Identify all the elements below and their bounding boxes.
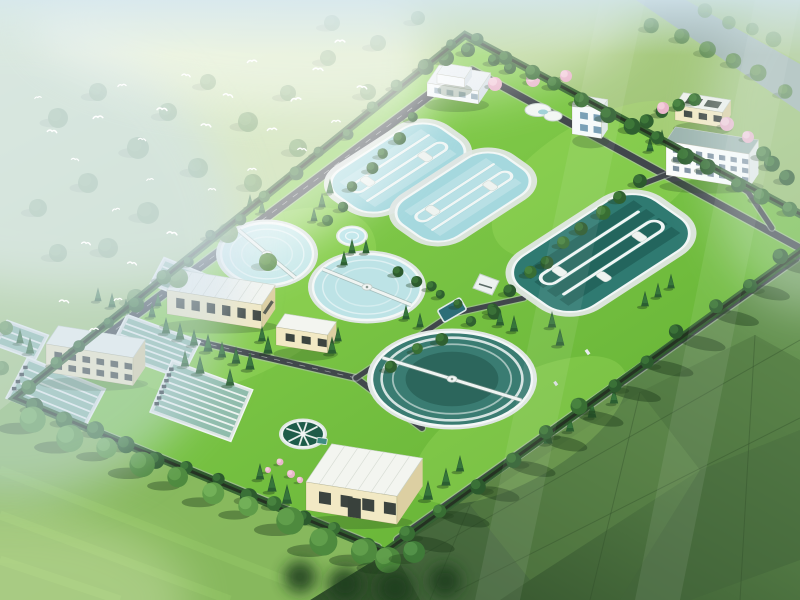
window (253, 310, 261, 321)
tree-highlight (267, 497, 276, 506)
tree-highlight (634, 175, 643, 184)
tree-highlight (624, 119, 634, 129)
tree-highlight (412, 276, 419, 283)
aerial-render-stage: Aerial rendering of a wastewater treatme… (0, 0, 800, 600)
flowering-tree-highlight (287, 470, 292, 475)
window (384, 502, 396, 516)
flowering-tree-highlight (297, 477, 301, 481)
window (302, 336, 311, 345)
tree-highlight (669, 325, 678, 334)
small-pond (538, 110, 548, 115)
window (318, 338, 327, 347)
tree-highlight (168, 467, 181, 480)
tank-outlet-box (317, 437, 328, 444)
tree-highlight (376, 548, 392, 564)
tree-highlight (678, 149, 688, 159)
tree-highlight (471, 480, 481, 490)
clarifier-large (367, 329, 537, 430)
flowering-tree-highlight (277, 459, 281, 463)
window (673, 166, 679, 172)
tree-highlight (436, 333, 444, 341)
tree-highlight (641, 356, 649, 364)
tree-highlight (427, 281, 433, 287)
sky-haze-strip (0, 0, 800, 55)
window (362, 498, 374, 512)
tree-highlight (277, 508, 294, 525)
tree-highlight (488, 307, 496, 315)
flowering-tree-highlight (658, 102, 665, 109)
tree-highlight (689, 94, 697, 102)
tree-highlight (651, 132, 659, 140)
center-pivot (451, 378, 454, 381)
window (237, 307, 245, 318)
foreground-tree (284, 561, 316, 593)
tree-highlight (673, 99, 681, 107)
tree-highlight (525, 266, 533, 274)
tree-highlight (311, 529, 328, 546)
tree-highlight (352, 539, 368, 555)
tree-highlight (436, 290, 442, 296)
tree-highlight (640, 115, 649, 124)
tree-highlight (393, 267, 400, 274)
tree-highlight (203, 483, 217, 497)
tank-hub (301, 432, 306, 437)
tree-highlight (609, 380, 617, 388)
tree-highlight (213, 473, 221, 481)
door (348, 497, 361, 519)
tree-highlight (504, 285, 512, 293)
tree-highlight (239, 497, 251, 509)
tree-highlight (400, 526, 410, 536)
tree-highlight (466, 316, 472, 322)
treatment-plant-aerial-render: Aerial rendering of a wastewater treatme… (0, 0, 800, 600)
tree-highlight (433, 505, 441, 513)
tree-highlight (454, 300, 460, 306)
window (684, 110, 692, 118)
foreground-tree (429, 565, 461, 597)
foreground-tree (328, 567, 362, 600)
tree-highlight (571, 398, 581, 408)
tree-highlight (614, 191, 622, 199)
window (684, 167, 690, 173)
window (319, 491, 331, 505)
tree-highlight (412, 344, 419, 351)
tree-highlight (404, 542, 418, 556)
center-pivot (366, 286, 369, 289)
window (286, 333, 295, 342)
flowering-tree-highlight (265, 467, 269, 471)
tree-highlight (385, 361, 393, 369)
